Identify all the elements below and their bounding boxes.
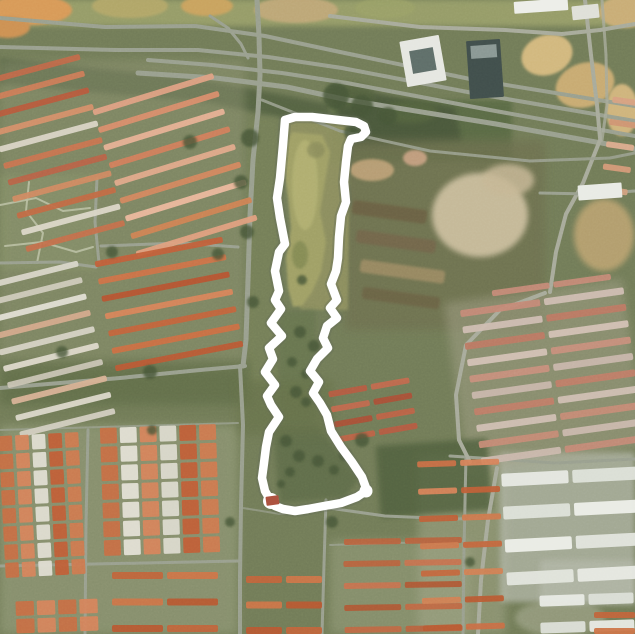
small-roof-at-start [265,495,279,506]
imagery-noise-overlay [0,0,635,634]
map-viewport[interactable] [0,0,635,634]
satellite-map-svg[interactable] [0,0,635,634]
route-end-marker [360,485,373,498]
